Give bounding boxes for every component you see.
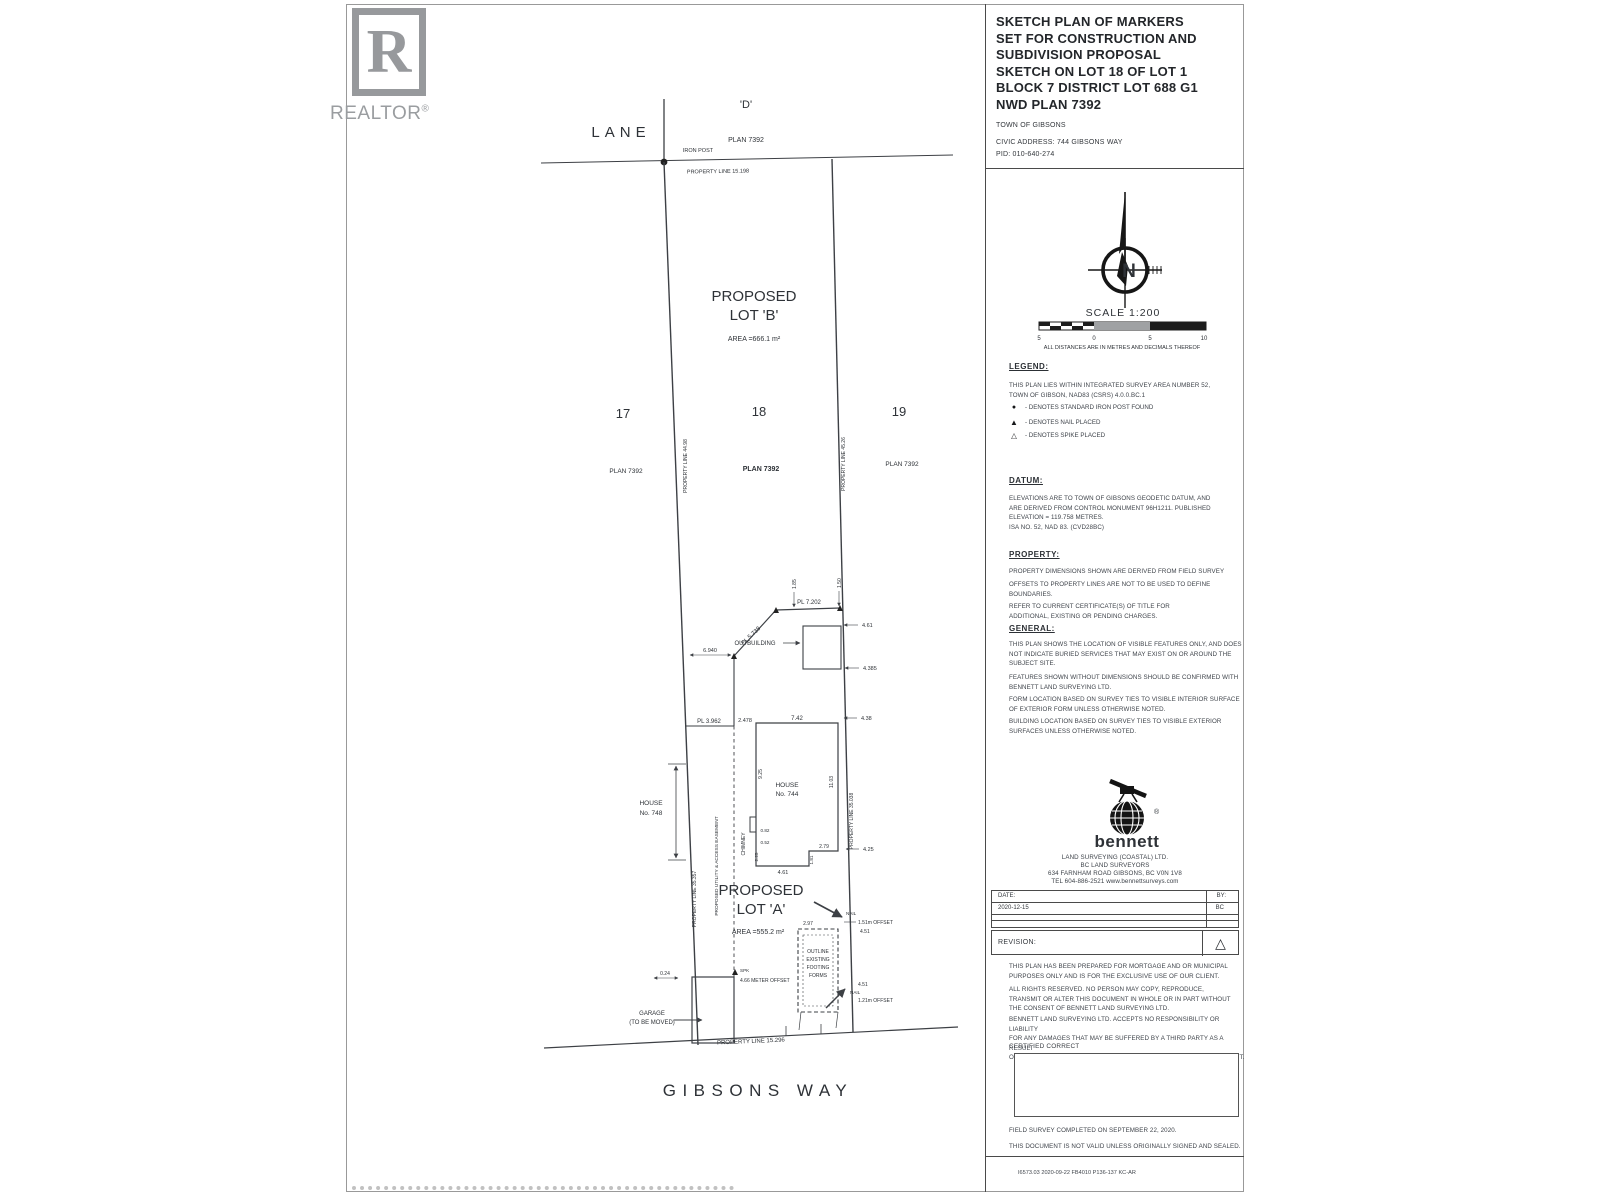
section-divider-1	[986, 168, 1244, 169]
lot17-plan: PLAN 7392	[609, 468, 643, 475]
lot-a-area: AREA =555.2 m²	[732, 929, 785, 936]
property-line-east-lower-label: PROPERTY LINE 35.038	[849, 793, 855, 850]
lot18-number: 18	[752, 404, 766, 419]
by-column	[1206, 915, 1238, 920]
street-tie-1	[799, 1012, 801, 1030]
certified-correct-label: CERTIFIED CORRECT	[1009, 1043, 1079, 1050]
property-p1: PROPERTY DIMENSIONS SHOWN ARE DERIVED FR…	[1009, 567, 1239, 577]
offset-label-2: 1.21m OFFSET	[858, 998, 893, 1004]
property-heading: PROPERTY:	[1009, 550, 1060, 559]
lot17-number: 17	[616, 406, 630, 421]
dim-1103: 11.03	[829, 776, 835, 788]
general-p3: FORM LOCATION BASED ON SURVEY TIES TO VI…	[1009, 695, 1242, 714]
lot19-plan: PLAN 7392	[885, 461, 919, 468]
notes-p2: ALL RIGHTS RESERVED. NO PERSON MAY COPY,…	[1009, 985, 1245, 1014]
date-header-row: DATE: BY:	[992, 891, 1238, 903]
instrument-body	[1120, 786, 1134, 794]
scale-tick-4: 10	[1201, 336, 1208, 342]
date-table: DATE: BY: 2020-12-15 BC	[991, 890, 1239, 928]
footing-label-2: EXISTING	[806, 957, 829, 963]
by-label: BY:	[1217, 893, 1226, 899]
dim-225: 2.25	[754, 852, 759, 861]
nail-tie-arrow-2	[826, 989, 845, 1008]
title-block-panel: SKETCH PLAN OF MARKERS SET FOR CONSTRUCT…	[985, 4, 1243, 1192]
general-heading: GENERAL:	[1009, 624, 1055, 633]
easement-label: PROPOSED UTILITY & ACCESS EASEMENT	[714, 816, 720, 915]
legend-item-text: - DENOTES SPIKE PLACED	[1025, 432, 1105, 439]
dim-181: 1.81	[809, 855, 814, 864]
lot-b-area: AREA =666.1 m²	[728, 336, 781, 343]
house-label-1: HOUSE	[775, 782, 799, 789]
north-arrow-and-scale: N SCALE 1:200 5 0 5 10 ALL DISTANCES ARE…	[986, 174, 1244, 354]
dim-742: 7.42	[791, 716, 803, 722]
registered-mark: ®	[1154, 808, 1160, 816]
chimney-label: CHIMNEY	[741, 832, 747, 856]
dim-425: 4.25	[863, 847, 874, 853]
by-column	[1206, 921, 1238, 927]
lot-b-title-1: PROPOSED	[711, 288, 796, 305]
garage-label-1: GARAGE	[639, 1011, 665, 1017]
footing-label-3: FOOTING	[807, 965, 830, 971]
lot18-plan: PLAN 7392	[743, 466, 780, 473]
general-p1: THIS PLAN SHOWS THE LOCATION OF VISIBLE …	[1009, 640, 1242, 669]
dim-461: 4.61	[862, 623, 873, 629]
scale-label: SCALE 1:200	[1086, 307, 1161, 319]
legend-item-nail: ▲ - DENOTES NAIL PLACED	[1009, 418, 1100, 427]
chimney-outline	[750, 817, 756, 832]
tripod-leg-2	[1132, 794, 1137, 802]
dim-2478: 2.478	[738, 718, 752, 724]
offset-label-3: 4.66 METER OFFSET	[740, 978, 790, 984]
nail-tie-arrow-1	[814, 902, 842, 917]
garage-outline	[692, 977, 734, 1043]
legend-item-iron-post: ● - DENOTES STANDARD IRON POST FOUND	[1009, 404, 1153, 411]
nail-placed-icon: ▲	[1009, 418, 1019, 427]
notes-p1: THIS PLAN HAS BEEN PREPARED FOR MORTGAGE…	[1009, 962, 1245, 981]
scanned-survey-plan-page: R REALTOR® LANE 'D' PLAN 7392 IRO	[0, 0, 1600, 1200]
municipality: TOWN OF GIBSONS	[996, 122, 1066, 129]
by-value: BC	[1216, 905, 1224, 911]
section-divider-2	[986, 1156, 1244, 1157]
date-value-row: 2020-12-15 BC	[992, 903, 1238, 915]
tripod-leg-1	[1119, 794, 1124, 802]
block-d-plan: PLAN 7392	[728, 137, 764, 144]
iron-post-label: IRON POST	[683, 148, 714, 154]
dim-925: 9.25	[758, 769, 764, 779]
legend-item-spike: △ - DENOTES SPIKE PLACED	[1009, 431, 1105, 440]
property-line-west-upper-label: PROPERTY LINE 44.98	[683, 439, 689, 493]
dim-052: 0.52	[761, 840, 770, 845]
dim-150: 1.50	[837, 578, 843, 588]
file-reference: I6573.03 2020-09-22 FB4010 P136-137 KC-A…	[1018, 1170, 1136, 1176]
pl-step-label: PL 7.202	[797, 600, 821, 606]
lot-b-title-2: LOT 'B'	[730, 307, 779, 324]
property-line-east	[832, 159, 853, 1032]
signature-box	[1014, 1053, 1239, 1117]
footing-label-1: OUTLINE	[807, 949, 829, 955]
footing-label-4: FORMS	[809, 973, 828, 979]
dim-451: 4.51	[860, 929, 870, 935]
neighbor-house-label-1: HOUSE	[639, 800, 663, 807]
subdivision-boundary-step	[734, 608, 840, 656]
property-line-west-lower-label: PROPERTY LINE 35.357	[692, 871, 698, 928]
scale-tick-2: 0	[1092, 336, 1096, 342]
general-p4: BUILDING LOCATION BASED ON SURVEY TIES T…	[1009, 717, 1242, 736]
plan-title: SKETCH PLAN OF MARKERS SET FOR CONSTRUCT…	[996, 14, 1236, 113]
lot-a-title-1: PROPOSED	[718, 882, 803, 899]
general-p2: FEATURES SHOWN WITHOUT DIMENSIONS SHOULD…	[1009, 673, 1242, 692]
revision-label: REVISION:	[998, 939, 1036, 946]
street-name: GIBSONS WAY	[663, 1081, 854, 1100]
surveyor-name: bennett	[1095, 832, 1160, 850]
lot19-number: 19	[892, 404, 906, 419]
lane-edge-line	[541, 155, 953, 163]
scale-tick-3: 5	[1148, 336, 1152, 342]
pl-west-label: PL 3.962	[697, 719, 721, 725]
iron-post-found-icon: ●	[1009, 404, 1019, 411]
surveyor-address: LAND SURVEYING (COASTAL) LTD. BC LAND SU…	[986, 854, 1244, 886]
property-line-east-upper-label: PROPERTY LINE 45.26	[841, 437, 847, 491]
spike-marker	[732, 969, 738, 975]
legend-intro: THIS PLAN LIES WITHIN INTEGRATED SURVEY …	[1009, 381, 1231, 400]
empty-row	[992, 921, 1238, 927]
block-d-label: 'D'	[740, 99, 752, 111]
house-label-2: No. 744	[776, 791, 799, 798]
legend-item-text: - DENOTES NAIL PLACED	[1025, 419, 1100, 426]
garage-label-2: (TO BE MOVED)	[629, 1020, 675, 1026]
offset-label-1: 1.51m OFFSET	[858, 920, 893, 926]
street-tie-2	[836, 1012, 838, 1028]
survey-drawing: LANE 'D' PLAN 7392 IRON POST PROPERTY LI…	[346, 4, 985, 1190]
neighbor-house-label-2: No. 748	[640, 810, 663, 817]
north-needle-blade	[1119, 192, 1125, 254]
outbuilding-outline	[803, 626, 841, 669]
property-p3: REFER TO CURRENT CERTIFICATE(S) OF TITLE…	[1009, 602, 1239, 621]
property-line-top-label: PROPERTY LINE 15.198	[687, 168, 749, 175]
dim-082: 0.82	[761, 828, 770, 833]
dim-6940: 6.940	[703, 648, 717, 654]
units-note: ALL DISTANCES ARE IN METRES AND DECIMALS…	[1044, 345, 1201, 351]
spike-label: SPK	[740, 968, 750, 973]
date-label: DATE:	[998, 893, 1015, 899]
nail-label-1: NAIL	[846, 911, 857, 916]
validity-note: THIS DOCUMENT IS NOT VALID UNLESS ORIGIN…	[1009, 1142, 1245, 1152]
dim-185: 1.85	[792, 579, 798, 589]
revision-box: REVISION: △	[991, 930, 1239, 955]
legend-heading: LEGEND:	[1009, 362, 1049, 371]
legend-item-text: - DENOTES STANDARD IRON POST FOUND	[1025, 404, 1153, 411]
field-survey-note: FIELD SURVEY COMPLETED ON SEPTEMBER 22, …	[1009, 1126, 1245, 1136]
property-p2: OFFSETS TO PROPERTY LINES ARE NOT TO BE …	[1009, 580, 1239, 599]
dim-4385: 4.385	[863, 666, 877, 672]
dim-438: 4.38	[861, 716, 872, 722]
lane-label: LANE	[591, 124, 650, 141]
lot-a-title-2: LOT 'A'	[737, 901, 786, 918]
scale-tick-1: 5	[1037, 336, 1041, 342]
dim-279: 2.79	[819, 844, 829, 850]
dim-461b: 4.61	[778, 870, 789, 876]
dim-451b: 4.51	[858, 982, 868, 988]
date-value: 2020-12-15	[998, 905, 1029, 911]
revision-symbol-cell: △	[1202, 931, 1238, 956]
surveyor-logo: ® bennett	[986, 768, 1244, 850]
illegible-microtext	[352, 1186, 734, 1190]
outbuilding-label: OUTBUILDING	[734, 641, 775, 647]
dim-024: 0.24	[660, 971, 670, 977]
spike-placed-icon: △	[1009, 431, 1019, 440]
dim-297: 2.97	[803, 921, 813, 927]
revision-delta-icon: △	[1215, 935, 1226, 951]
datum-heading: DATUM:	[1009, 476, 1043, 485]
civic-address: CIVIC ADDRESS: 744 GIBSONS WAY	[996, 139, 1123, 146]
north-letter: N	[1122, 261, 1136, 282]
datum-body: ELEVATIONS ARE TO TOWN OF GIBSONS GEODET…	[1009, 494, 1234, 532]
pid: PID: 010-640-274	[996, 151, 1054, 158]
nail-label-2: NAIL	[850, 990, 861, 995]
scale-bar	[1039, 322, 1206, 330]
